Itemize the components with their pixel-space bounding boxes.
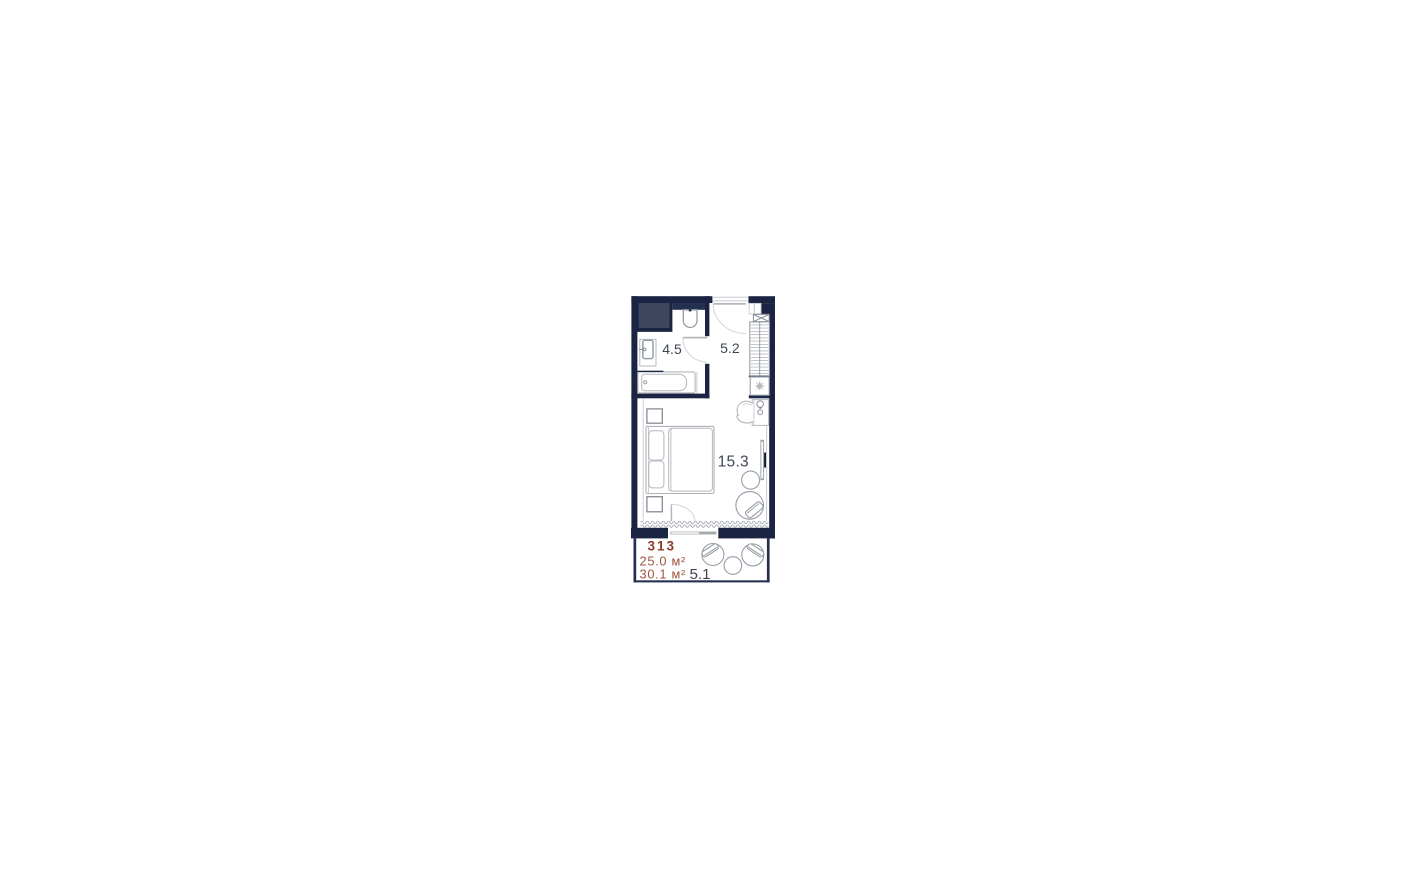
svg-text:15.3: 15.3 bbox=[718, 454, 749, 471]
svg-text:4.5: 4.5 bbox=[662, 341, 682, 357]
svg-text:5.1: 5.1 bbox=[689, 566, 710, 583]
svg-text:5.2: 5.2 bbox=[720, 340, 740, 356]
svg-text:313: 313 bbox=[648, 539, 677, 554]
svg-text:30.1 м²: 30.1 м² bbox=[640, 566, 686, 581]
